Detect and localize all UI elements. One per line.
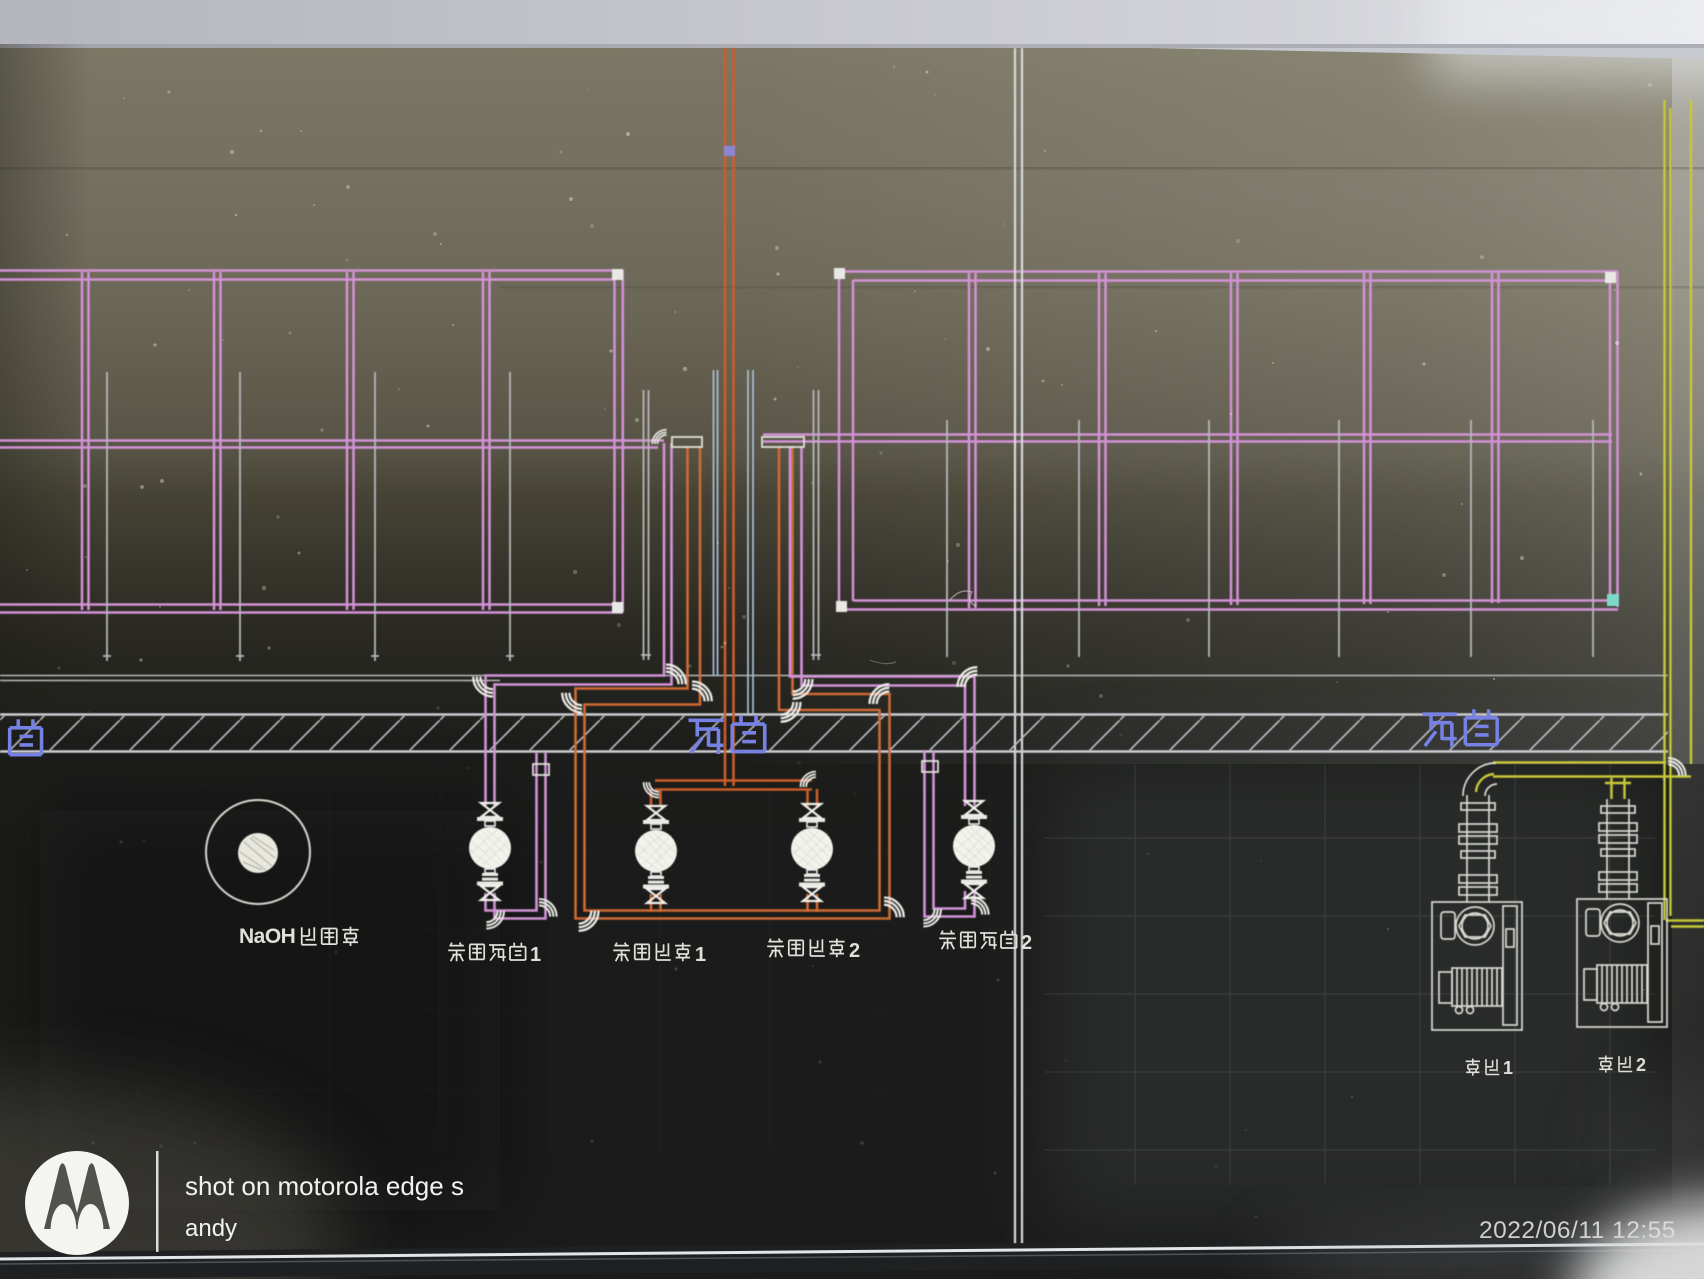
svg-text:shot on motorola edge s: shot on motorola edge s [185, 1171, 464, 1201]
svg-text:1: 1 [530, 944, 541, 966]
svg-text:2: 2 [1636, 1055, 1646, 1075]
svg-text:2: 2 [1021, 932, 1032, 954]
svg-text:2: 2 [849, 940, 860, 962]
svg-text:NaOH: NaOH [239, 925, 295, 948]
svg-text:1: 1 [695, 944, 706, 966]
svg-text:1: 1 [1503, 1058, 1513, 1078]
svg-text:andy: andy [185, 1215, 237, 1242]
